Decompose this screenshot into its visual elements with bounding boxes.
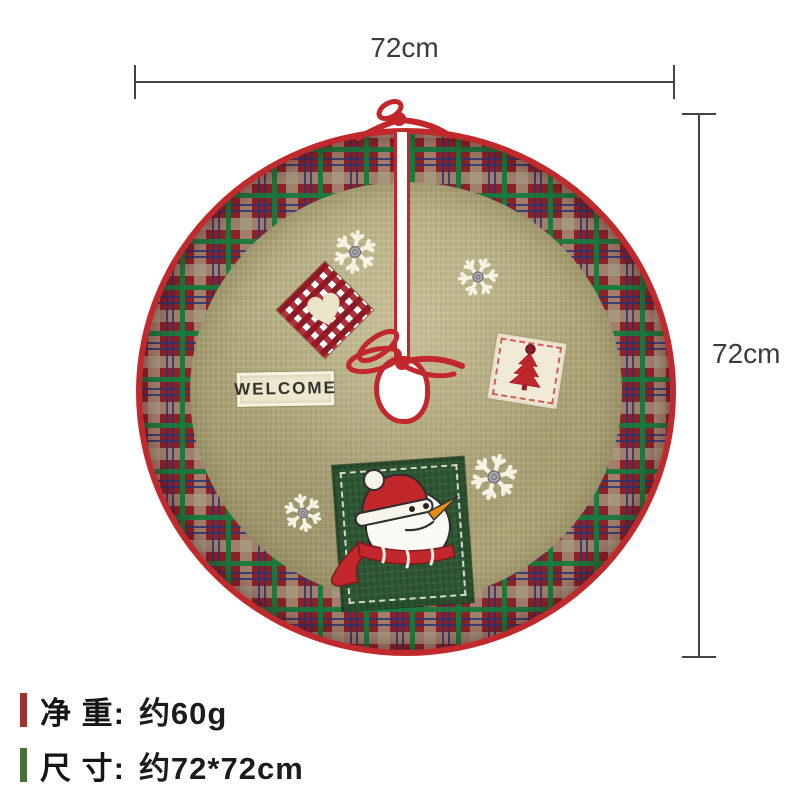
christmas-tree-patch bbox=[487, 333, 566, 409]
spec-label: 净 重: bbox=[40, 688, 125, 733]
top-dimension-label: 72cm bbox=[134, 32, 675, 64]
snowman-icon bbox=[312, 450, 482, 620]
dimension-tick bbox=[134, 65, 136, 99]
spec-label: 尺 寸: bbox=[40, 743, 125, 788]
snowflake-icon bbox=[455, 254, 501, 300]
right-dimension-line bbox=[698, 113, 700, 658]
dimension-tick bbox=[673, 65, 675, 99]
dimension-tick bbox=[682, 656, 716, 658]
spec-row-size: 尺 寸: 约72*72cm bbox=[20, 743, 304, 787]
spec-bullet-bar bbox=[20, 748, 27, 782]
spec-bullet-bar bbox=[20, 693, 27, 727]
spec-row-net-weight: 净 重: 约60g bbox=[20, 688, 304, 732]
spec-value: 约60g bbox=[139, 688, 227, 733]
tie-knot-icon bbox=[348, 96, 460, 148]
right-dimension-label: 72cm bbox=[712, 338, 780, 370]
snowflake-icon bbox=[330, 227, 380, 277]
christmas-tree-icon bbox=[499, 339, 555, 404]
top-dimension-line bbox=[134, 81, 675, 83]
spec-value: 约72*72cm bbox=[139, 743, 304, 788]
spec-list: 净 重: 约60g 尺 寸: 约72*72cm bbox=[20, 688, 304, 798]
tie-bow-icon bbox=[332, 322, 482, 394]
dimension-tick bbox=[682, 113, 716, 115]
welcome-patch-label: WELCOME bbox=[234, 378, 337, 400]
welcome-patch: WELCOME bbox=[237, 371, 335, 407]
product-spec-image: 72cm 72cm WELCOME bbox=[0, 0, 800, 800]
